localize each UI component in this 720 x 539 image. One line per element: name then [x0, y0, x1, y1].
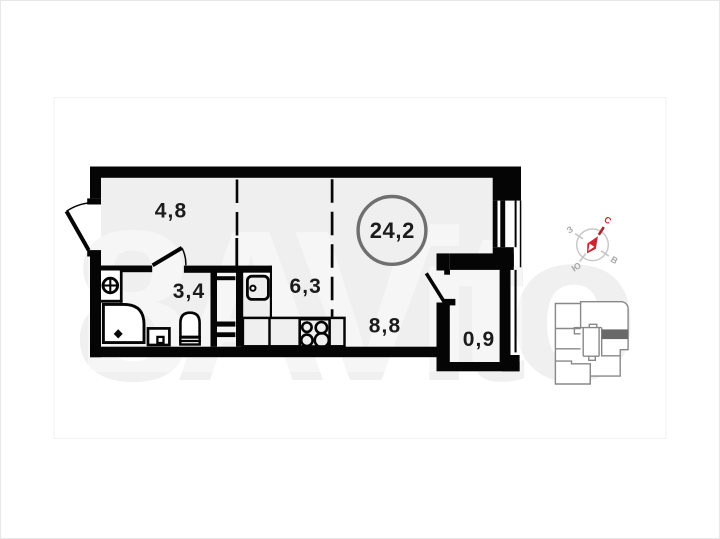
svg-text:3,4: 3,4 [173, 280, 206, 303]
svg-text:8,8: 8,8 [369, 315, 402, 338]
svg-text:6,3: 6,3 [289, 275, 322, 298]
svg-text:4,8: 4,8 [155, 200, 188, 223]
svg-text:24,2: 24,2 [370, 218, 415, 243]
svg-text:0,9: 0,9 [463, 328, 496, 351]
